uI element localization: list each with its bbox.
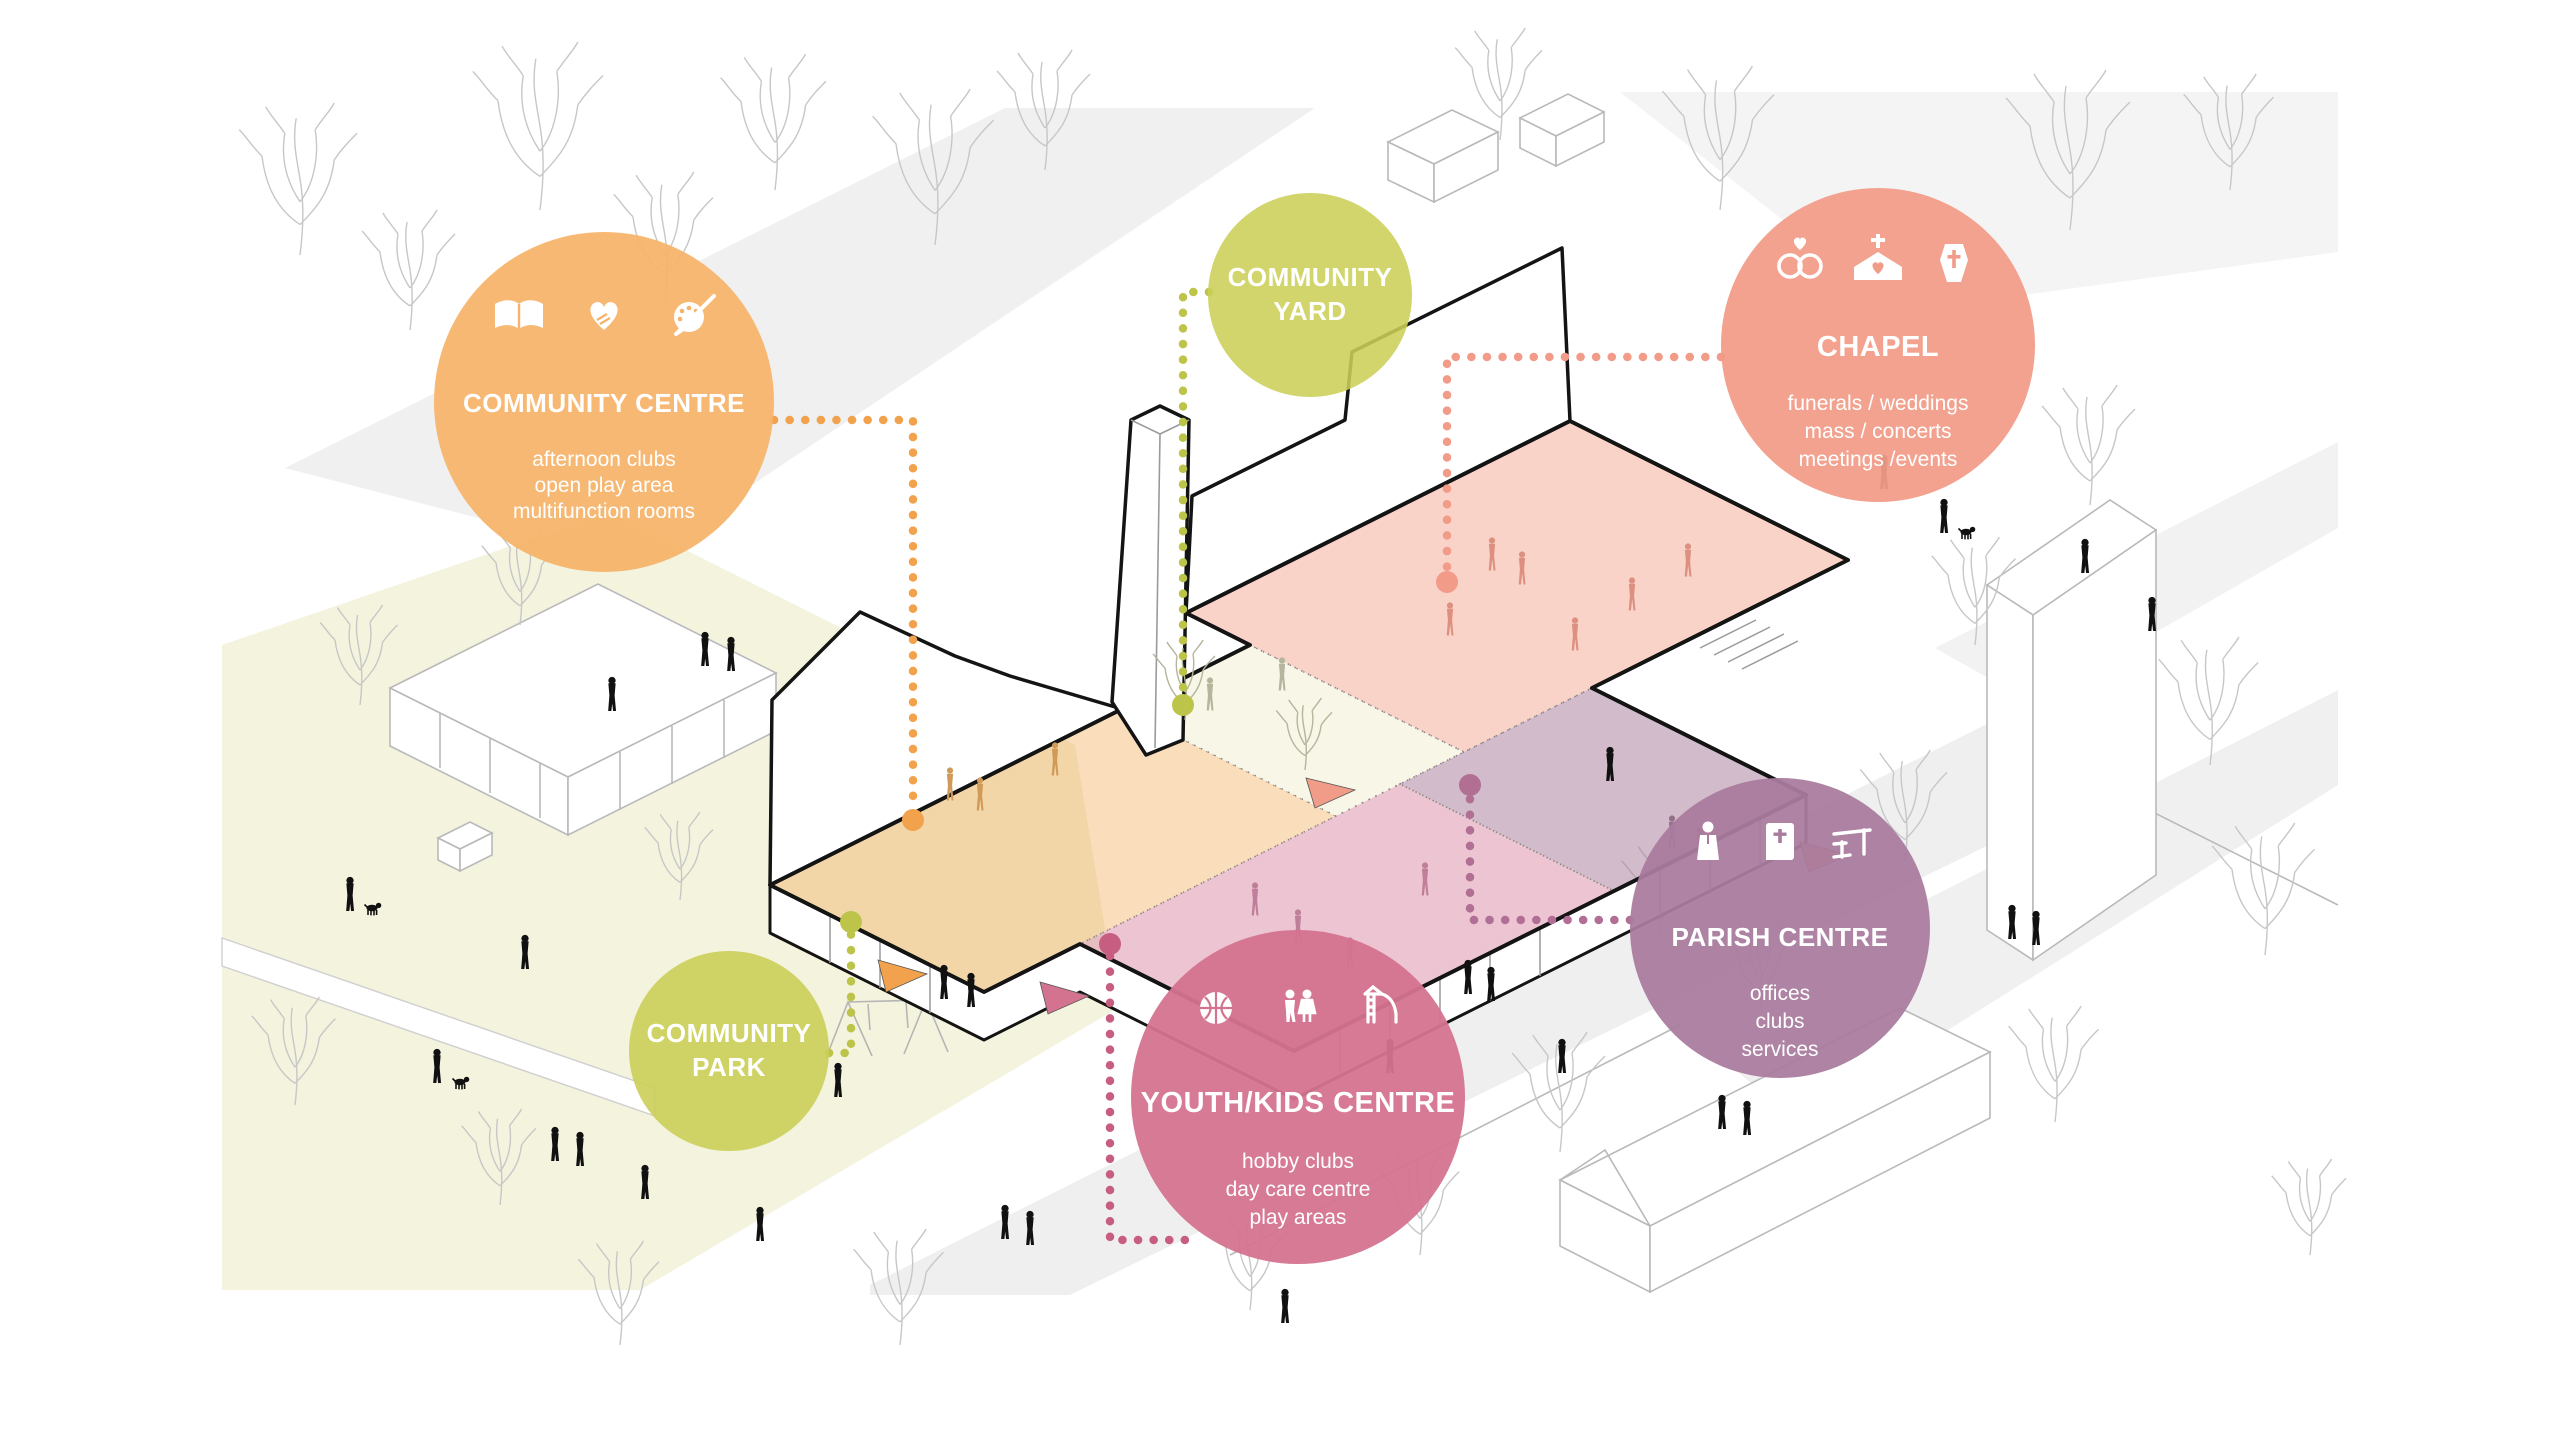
person: [1941, 499, 1948, 532]
person: [757, 1207, 764, 1240]
leader-end-dot: [1459, 774, 1481, 796]
bubble-title: CHAPEL: [1817, 331, 1939, 363]
bubble-circle: [1208, 193, 1412, 397]
bubble-youth-kids-centre: YOUTH/KIDS CENTRE hobby clubs day care c…: [1131, 930, 1465, 1264]
bubble-title: PARK: [692, 1052, 766, 1082]
basketball-icon: [1200, 992, 1232, 1024]
leader-end-dot: [1172, 694, 1194, 716]
leader-end-dot: [1099, 933, 1121, 955]
leader-end-dot: [902, 809, 924, 831]
bubble-detail: afternoon clubs: [532, 448, 676, 471]
leader-end-dot: [1436, 571, 1458, 593]
bubble-title: COMMUNITY: [647, 1018, 812, 1048]
person: [1559, 1039, 1566, 1072]
small-block-north-1: [1388, 110, 1498, 202]
masterplan-diagram: COMMUNITY CENTRE afternoon clubs open pl…: [0, 0, 2560, 1440]
bubble-detail: meetings /events: [1799, 448, 1958, 471]
bubble-detail: mass / concerts: [1804, 420, 1951, 443]
bubble-detail: play areas: [1250, 1206, 1347, 1229]
bubble-detail: open play area: [535, 474, 674, 497]
bubble-title: YARD: [1273, 296, 1346, 326]
bubble-title: COMMUNITY: [1228, 262, 1393, 292]
bubble-parish-centre: PARISH CENTRE offices clubs services: [1630, 778, 1930, 1078]
bubble-detail: hobby clubs: [1242, 1150, 1354, 1173]
bubble-detail: day care centre: [1226, 1178, 1371, 1201]
tree: [239, 103, 357, 255]
dog: [1959, 527, 1975, 539]
tree: [473, 42, 603, 210]
bubble-community-centre: COMMUNITY CENTRE afternoon clubs open pl…: [434, 232, 774, 572]
bubble-detail: multifunction rooms: [513, 500, 695, 523]
bubble-detail: funerals / weddings: [1788, 392, 1969, 415]
tall-building-east: [1987, 500, 2156, 960]
bubble-title: COMMUNITY CENTRE: [463, 388, 745, 418]
tree: [2009, 1006, 2099, 1122]
bubble-title: YOUTH/KIDS CENTRE: [1141, 1087, 1456, 1119]
bible-icon: [1766, 823, 1794, 860]
bubble-detail: services: [1741, 1038, 1818, 1061]
bubble-detail: clubs: [1755, 1010, 1804, 1033]
person: [1282, 1289, 1289, 1322]
leader-end-dot: [840, 911, 862, 933]
bubble-circle: [629, 951, 829, 1151]
tree: [2042, 385, 2135, 505]
small-block-north-2: [1520, 94, 1604, 166]
open-book-icon: [495, 300, 543, 329]
bubble-detail: offices: [1750, 982, 1810, 1005]
tree: [2272, 1159, 2346, 1255]
bubble-community-yard: COMMUNITY YARD: [1208, 193, 1412, 397]
bubble-community-park: COMMUNITY PARK: [629, 951, 829, 1151]
bubble-chapel: CHAPEL funerals / weddings mass / concer…: [1721, 188, 2035, 502]
bubble-title: PARISH CENTRE: [1672, 922, 1889, 952]
tree: [362, 210, 455, 330]
tree: [721, 54, 826, 190]
masterplan-svg: COMMUNITY CENTRE afternoon clubs open pl…: [0, 0, 2560, 1440]
